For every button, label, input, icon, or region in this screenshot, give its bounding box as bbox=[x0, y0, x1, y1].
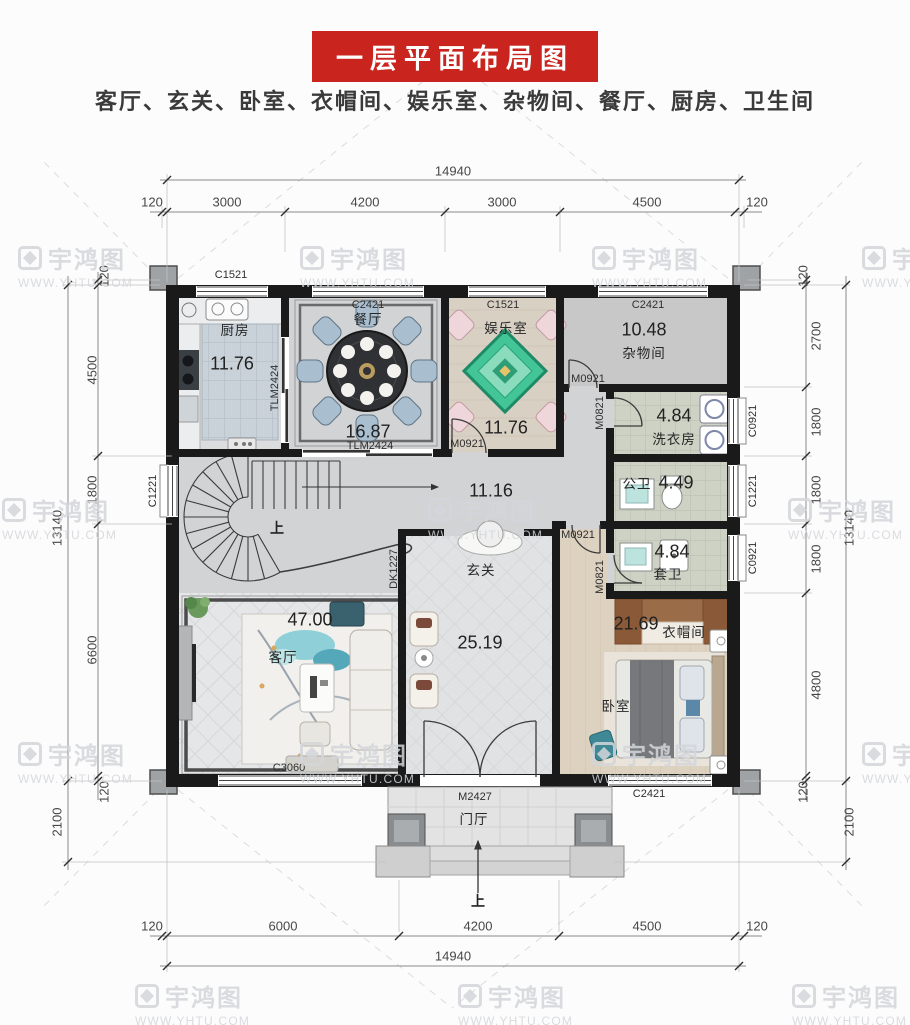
tv-console bbox=[178, 626, 192, 720]
code-window-c0921: C0921 bbox=[747, 405, 759, 437]
step bbox=[430, 861, 570, 875]
dim-right-seg: 120 bbox=[796, 781, 811, 803]
code-window-c0921: C0921 bbox=[747, 542, 759, 574]
pillow bbox=[680, 666, 704, 700]
column-base bbox=[570, 846, 624, 877]
room-area-entertainment: 11.76 bbox=[484, 418, 528, 439]
window-c1221-stairs bbox=[160, 465, 178, 517]
sliding-door-tlm2424-kitchen bbox=[281, 337, 289, 443]
room-label-laundry: 洗衣房 bbox=[652, 428, 696, 448]
dim-right-seg: 4800 bbox=[809, 671, 824, 700]
room-area-foyer: 25.19 bbox=[457, 633, 502, 654]
code-window-c2421: C2421 bbox=[633, 788, 665, 800]
pillow bbox=[680, 718, 704, 752]
floor-plan-drawing bbox=[0, 0, 910, 1025]
code-window-c1221: C1221 bbox=[747, 475, 759, 507]
code-window-c1521: C1521 bbox=[487, 299, 519, 311]
room-area-hall: 11.16 bbox=[469, 481, 513, 502]
floor-plan-page: 一层平面布局图 客厅、玄关、卧室、衣帽间、娱乐室、杂物间、餐厅、厨房、卫生间 bbox=[0, 0, 910, 1025]
code-door-m0921: M0921 bbox=[571, 373, 605, 385]
room-label-dining: 餐厅 bbox=[354, 308, 383, 328]
dim-left-seg: 4500 bbox=[85, 356, 100, 385]
foyer-chair bbox=[410, 612, 438, 646]
dim-right-seg: 120 bbox=[796, 265, 811, 287]
blanket bbox=[630, 660, 674, 758]
porch bbox=[376, 787, 624, 893]
code-window-c1521: C1521 bbox=[215, 269, 247, 281]
mirror bbox=[477, 521, 503, 547]
room-label-storage: 杂物间 bbox=[622, 342, 666, 362]
room-label-ensuite: 套卫 bbox=[654, 563, 683, 583]
room-area-ensuite: 4.84 bbox=[654, 542, 689, 563]
room-area: 4.49 bbox=[658, 473, 693, 494]
room-area-storage: 10.48 bbox=[621, 320, 666, 341]
window-c2421-bedroom bbox=[608, 775, 712, 786]
code-window-c2421: C2421 bbox=[632, 299, 664, 311]
dim-right-seg: 1800 bbox=[809, 408, 824, 437]
dim-bottom-seg: 4500 bbox=[633, 919, 662, 934]
dim-bottom-seg: 120 bbox=[746, 919, 768, 934]
dim-bottom-seg: 120 bbox=[141, 919, 163, 934]
dim-left-seg: 6600 bbox=[85, 636, 100, 665]
window-c0921-ensuite bbox=[728, 535, 746, 581]
window-c3060-living bbox=[218, 775, 362, 786]
dim-top-seg: 4500 bbox=[633, 195, 662, 210]
code-door-m0921: M0921 bbox=[561, 529, 595, 541]
side-cabinet bbox=[330, 602, 364, 626]
porch-up-label: 上 bbox=[471, 891, 485, 911]
dim-left-porch: 2100 bbox=[50, 808, 65, 837]
room-label-living: 客厅 bbox=[269, 646, 298, 666]
column-base bbox=[376, 846, 430, 877]
code-door-m0921: M0921 bbox=[450, 438, 484, 450]
dim-right-seg: 1800 bbox=[809, 545, 824, 574]
room-label-porch: 门厅 bbox=[460, 808, 489, 828]
dim-top-seg: 3000 bbox=[213, 195, 242, 210]
foyer-chair bbox=[410, 674, 438, 708]
dim-bottom-seg: 6000 bbox=[269, 919, 298, 934]
dim-top-overall: 14940 bbox=[435, 164, 471, 179]
dim-right-overall: 13140 bbox=[842, 510, 857, 546]
room-label-entertainment: 娱乐室 bbox=[484, 317, 528, 337]
sofa bbox=[350, 630, 392, 750]
stairs-up-label: 上 bbox=[270, 518, 284, 538]
window-c1521-entertainment bbox=[468, 286, 546, 297]
room-area-living: 47.00 bbox=[287, 610, 332, 631]
window-c1521-kitchen bbox=[196, 286, 268, 297]
dim-top-seg: 120 bbox=[746, 195, 768, 210]
window-c2421-storage bbox=[598, 286, 708, 297]
room-label-foyer: 玄关 bbox=[467, 559, 496, 579]
room-label-cloakroom: 衣帽间 bbox=[662, 621, 706, 641]
room-label-bedroom: 卧室 bbox=[602, 695, 631, 715]
code-window-c1221: C1221 bbox=[147, 475, 159, 507]
dim-left-overall: 13140 bbox=[50, 510, 65, 546]
dim-top-seg: 4200 bbox=[351, 195, 380, 210]
code-door-m0821: M0821 bbox=[594, 560, 606, 594]
window-c2421-dining bbox=[312, 286, 424, 297]
dim-left-seg: 120 bbox=[97, 781, 112, 803]
room-area-dining: 16.87 bbox=[345, 422, 390, 443]
page-title: 一层平面布局图 bbox=[312, 31, 598, 82]
dim-top-seg: 3000 bbox=[488, 195, 517, 210]
dim-right-seg: 1800 bbox=[809, 476, 824, 505]
step bbox=[430, 846, 570, 861]
code-opening-dk1227: DK1227 bbox=[388, 549, 400, 589]
room-area-bedroom: 21.69 bbox=[613, 614, 658, 635]
code-window-c3060: C3060 bbox=[273, 762, 305, 774]
tv bbox=[192, 644, 196, 702]
room-label-kitchen: 厨房 bbox=[221, 319, 250, 339]
dim-bottom-overall: 14940 bbox=[435, 949, 471, 964]
room-area-laundry: 4.84 bbox=[656, 406, 691, 427]
window-c1221-public-bath bbox=[728, 465, 746, 517]
dim-right-seg: 2700 bbox=[809, 322, 824, 351]
dim-left-seg: 1800 bbox=[85, 476, 100, 505]
dim-right-porch: 2100 bbox=[842, 808, 857, 837]
room-area-kitchen: 11.76 bbox=[210, 354, 254, 375]
dim-left-seg: 120 bbox=[97, 265, 112, 287]
dim-bottom-seg: 4200 bbox=[464, 919, 493, 934]
code-door-m0821: M0821 bbox=[594, 396, 606, 430]
room-list-subtitle: 客厅、玄关、卧室、衣帽间、娱乐室、杂物间、餐厅、厨房、卫生间 bbox=[0, 84, 910, 116]
window-c0921-laundry bbox=[728, 398, 746, 444]
headboard bbox=[712, 656, 724, 762]
room-name: 公卫 bbox=[622, 473, 651, 493]
code-sliding-tlm2424: TLM2424 bbox=[269, 365, 281, 411]
room-label-public-bath: 公卫 4.49 bbox=[622, 473, 693, 494]
dim-top-seg: 120 bbox=[141, 195, 163, 210]
kitchen-appliance bbox=[178, 396, 198, 422]
code-door-m2427: M2427 bbox=[458, 791, 492, 803]
ottoman bbox=[300, 722, 330, 746]
